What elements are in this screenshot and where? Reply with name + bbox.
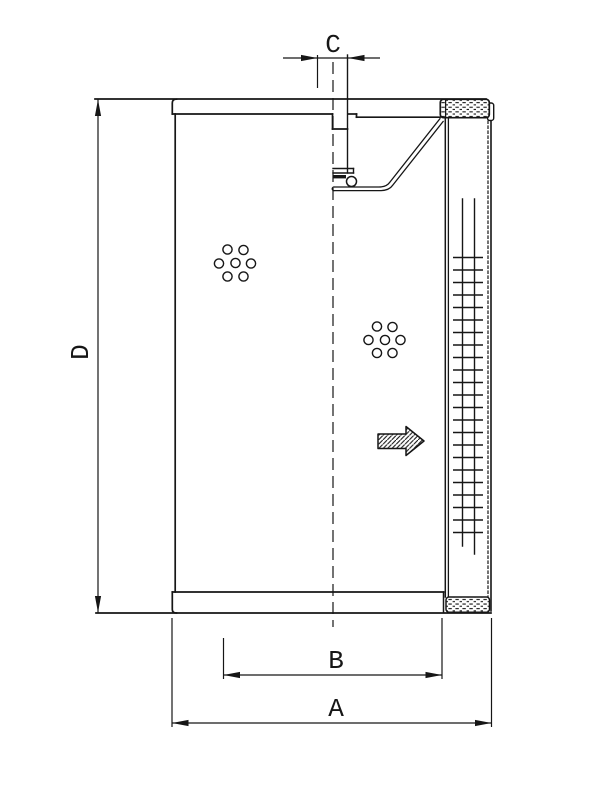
dim-label-d: D <box>66 344 96 360</box>
flow-arrow-icon <box>378 427 424 456</box>
seal-ring-section <box>347 177 357 187</box>
perforation-holes-right <box>364 322 405 358</box>
bypass-port <box>333 55 357 187</box>
perforation-holes-left <box>214 245 255 281</box>
bottom-seal <box>446 597 490 612</box>
top-end-cap <box>95 99 486 129</box>
dim-label-b: B <box>328 646 344 676</box>
filter-media-column <box>444 118 492 613</box>
element-body <box>95 99 491 613</box>
bottom-end-cap <box>96 592 491 613</box>
media-pleats <box>453 252 483 534</box>
filter-element-drawing: C D B A <box>0 0 612 792</box>
dim-label-c: C <box>325 30 341 60</box>
valve-seat-bar <box>333 175 347 178</box>
top-seal <box>440 99 489 117</box>
drawing-page: C D B A <box>0 0 612 792</box>
dim-label-a: A <box>328 694 344 724</box>
